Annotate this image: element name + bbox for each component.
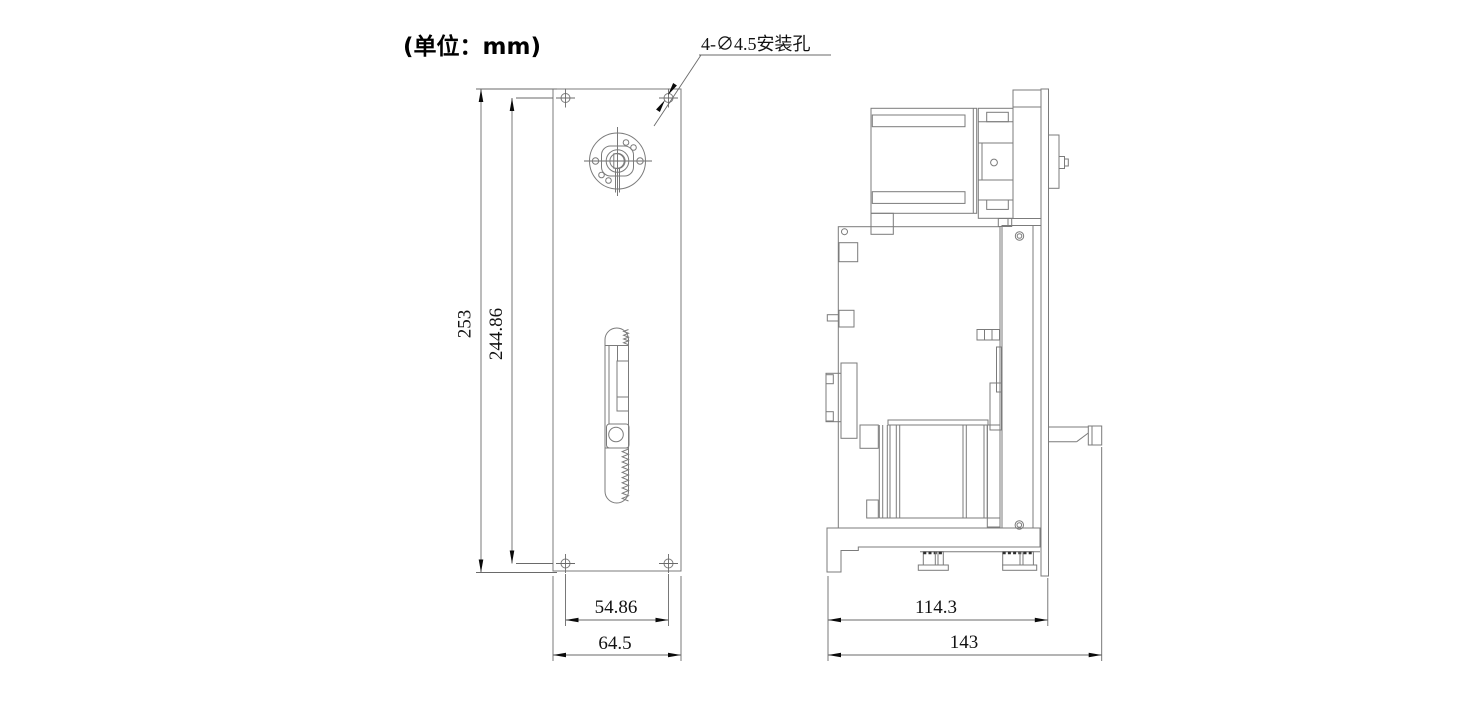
dim-text-total-width: 64.5: [598, 633, 631, 654]
rail-block: [977, 330, 1000, 341]
dim-text-hole-span-vertical: 244.86: [486, 308, 507, 360]
motor-bracket: [1008, 90, 1041, 226]
dim-body-depth: 114.3: [828, 576, 1048, 661]
gearbox-hole: [991, 159, 998, 166]
dim-text-hole-span-horizontal: 54.86: [595, 597, 638, 618]
output-flange: [584, 127, 652, 196]
board-hole: [842, 229, 848, 235]
corner-hole-top-left: [556, 89, 575, 108]
board-connector: [826, 363, 857, 438]
gear-rack: [617, 361, 629, 397]
units-label: (单位：mm): [403, 33, 541, 60]
base-bracket: [827, 528, 1040, 572]
technical-drawing-canvas: 253 244.86 54.86 64.5 114.3: [0, 0, 1480, 715]
corner-hole-bottom-right: [659, 554, 678, 573]
dim-hole-span-horizontal: 54.86: [566, 574, 669, 626]
dim-hole-span-vertical: 244.86: [486, 98, 553, 564]
rail-foot-left: [918, 552, 948, 571]
lower-mechanism: [860, 420, 1000, 527]
corner-hole-bottom-left: [556, 554, 575, 573]
control-board: [826, 227, 1000, 528]
motor-tab: [871, 213, 893, 234]
guide-slot: [605, 328, 629, 503]
motor-body: [871, 108, 977, 213]
side-view: [826, 89, 1102, 576]
stepper-motor: [871, 108, 977, 234]
mounting-holes-label: 4-∅4.5安装孔: [701, 34, 811, 54]
technical-drawing-page: 253 244.86 54.86 64.5 114.3: [0, 0, 1480, 715]
front-view: [553, 89, 681, 574]
board-component: [839, 243, 858, 262]
carriage-roller: [607, 424, 630, 448]
dim-text-body-depth: 114.3: [915, 597, 957, 618]
mounting-rail: [977, 219, 1033, 530]
handle-rod: [1049, 426, 1102, 445]
rail-foot-right: [1003, 552, 1037, 571]
dim-text-total-depth: 143: [950, 632, 979, 653]
dim-total-width: 64.5: [553, 576, 681, 661]
output-shaft-boss: [1049, 135, 1069, 188]
gearbox: [978, 108, 1013, 218]
dim-text-total-height: 253: [455, 310, 476, 339]
side-plate: [1041, 89, 1049, 576]
dim-total-depth: 143: [828, 447, 1102, 661]
screw-top: [1015, 232, 1023, 240]
rack-edge-strip: [997, 347, 1002, 392]
rack-teeth-bottom: [622, 449, 628, 501]
